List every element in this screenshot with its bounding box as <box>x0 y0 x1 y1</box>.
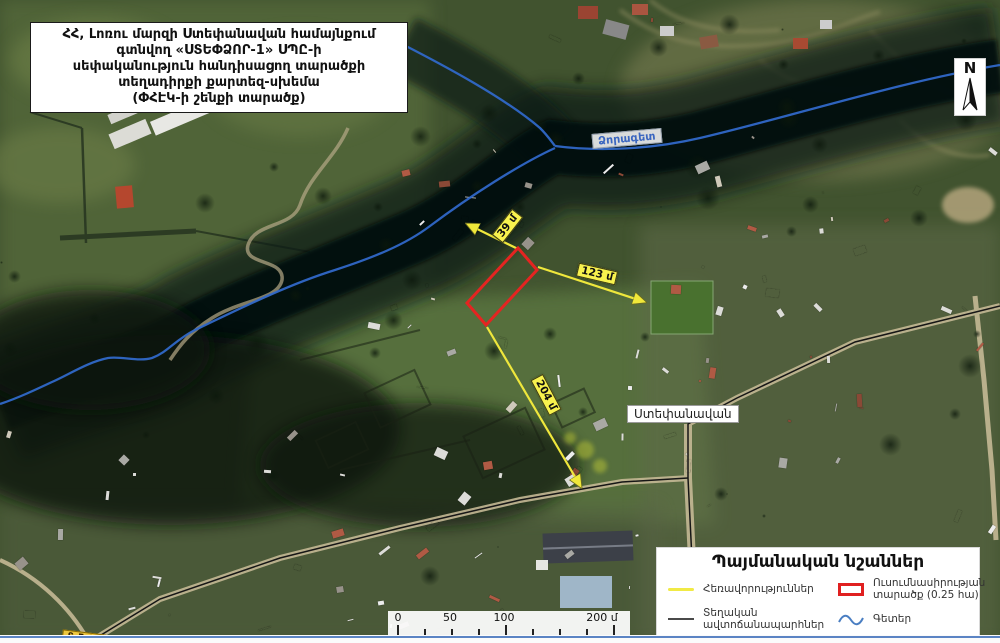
title-line: գտնվող «ՍՏԵՓՁՈՐ-1» ՍՊԸ-ի <box>33 43 405 59</box>
road-line-symbol <box>667 618 695 620</box>
legend-item-study-area: Ուսումնասիրության տարածք (0.25 հա) <box>837 577 987 601</box>
north-arrow-icon <box>959 77 981 113</box>
scale-label: 0 <box>395 611 402 624</box>
scale-label: 100 <box>494 611 515 624</box>
title-line: (ՓՀԷԿ-ի շենքի տարածք) <box>33 91 405 107</box>
city-name-label: Ստեփանավան <box>627 405 739 423</box>
legend-item-rivers: Գետեր <box>837 607 987 631</box>
distance-line-symbol <box>667 588 695 591</box>
scale-label: 50 <box>443 611 457 624</box>
north-arrow: N <box>954 58 986 116</box>
title-line: տեղադիրքի քարտեզ-սխեմա <box>33 75 405 91</box>
scale-label: 200 մ <box>586 611 617 624</box>
legend-item-label: Գետեր <box>873 613 911 625</box>
legend-item-distances: Հեռավորություններ <box>667 577 837 601</box>
legend-item-local-roads: Տեղական ավտոճանապարհներ <box>667 607 837 631</box>
title-line: ՀՀ, Լոռու մարզի Ստեփանավան համայնքում <box>33 27 405 43</box>
study-area-polygon <box>467 248 537 325</box>
title-line: սեփականություն հանդիսացող տարածքի <box>33 59 405 75</box>
scale-bar: 0 50 100 200 մ <box>388 611 630 637</box>
river-symbol <box>837 612 865 626</box>
legend: Պայմանական նշաններ Հեռավորություններ Ուս… <box>656 547 980 636</box>
map-title-box: ՀՀ, Լոռու մարզի Ստեփանավան համայնքում գտ… <box>30 22 408 113</box>
legend-item-label: Ուսումնասիրության տարածք (0.25 հա) <box>873 577 987 601</box>
distance-line-204 <box>487 327 581 487</box>
map-frame: ՀՀ, Լոռու մարզի Ստեփանավան համայնքում գտ… <box>0 0 1000 643</box>
north-label: N <box>955 59 985 77</box>
legend-title: Պայմանական նշաններ <box>657 552 979 572</box>
map-frame-border <box>0 635 1000 643</box>
study-area-symbol <box>837 583 865 596</box>
legend-item-label: Տեղական ավտոճանապարհներ <box>703 607 823 631</box>
legend-item-label: Հեռավորություններ <box>703 583 814 595</box>
